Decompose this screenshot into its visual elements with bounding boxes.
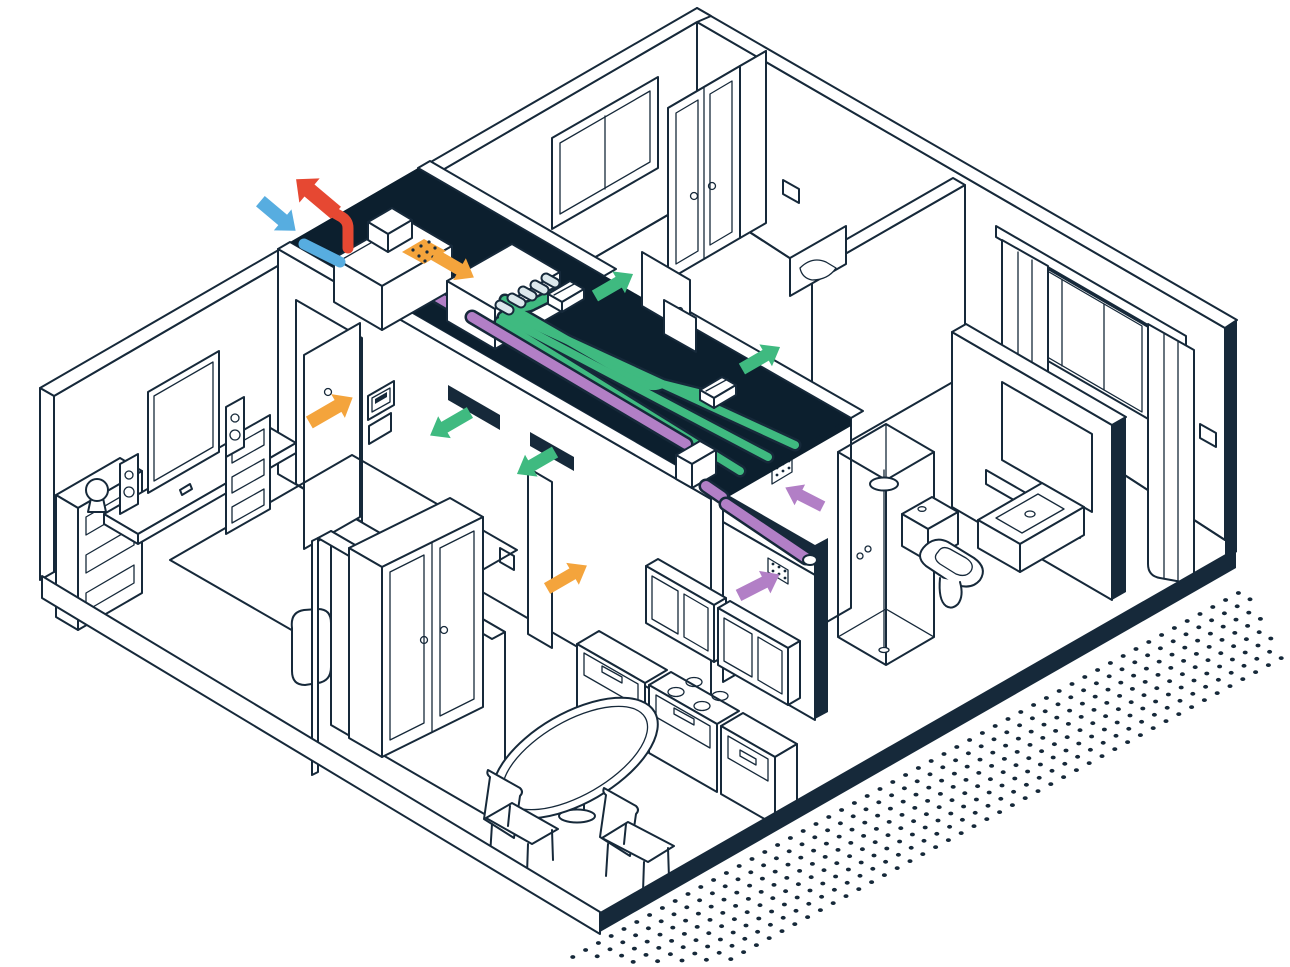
- halftone-dot: [890, 780, 895, 784]
- halftone-dot: [1075, 755, 1080, 759]
- halftone-dot: [980, 731, 985, 735]
- halftone-dot: [1130, 687, 1135, 691]
- halftone-dot: [1165, 706, 1170, 710]
- halftone-dot: [619, 954, 624, 958]
- halftone-dot: [1268, 637, 1273, 641]
- halftone-dot: [914, 793, 919, 797]
- halftone-dot: [719, 924, 724, 928]
- halftone-dot: [966, 751, 971, 755]
- nw-wall-end-cut: [40, 388, 54, 580]
- halftone-dot: [864, 807, 869, 811]
- halftone-dot: [954, 745, 959, 749]
- halftone-dot: [812, 835, 817, 839]
- halftone-dot: [608, 947, 613, 951]
- halftone-dot: [1203, 685, 1208, 689]
- halftone-dot: [1031, 703, 1036, 707]
- halftone-dot: [1067, 709, 1072, 713]
- halftone-dot: [923, 826, 928, 830]
- halftone-dot: [1254, 657, 1259, 661]
- kitchen-door-frame: [528, 468, 552, 648]
- halftone-dot: [820, 882, 825, 886]
- halftone-dot: [929, 759, 934, 763]
- halftone-dot: [633, 933, 638, 937]
- halftone-dot: [1166, 693, 1171, 697]
- halftone-dot: [1152, 713, 1157, 717]
- halftone-dot: [876, 800, 881, 804]
- halftone-dot: [1228, 684, 1233, 688]
- halftone-dot: [805, 915, 810, 919]
- halftone-dot: [1025, 770, 1030, 774]
- halftone-dot: [583, 948, 588, 952]
- halftone-dot: [984, 817, 989, 821]
- halftone-dot: [1153, 700, 1158, 704]
- halftone-dot: [908, 859, 913, 863]
- halftone-dot: [1104, 701, 1109, 705]
- halftone-dot: [706, 931, 711, 935]
- halftone-dot: [1267, 650, 1272, 654]
- halftone-dot: [1064, 749, 1069, 753]
- halftone-dot: [1222, 611, 1227, 615]
- halftone-dot: [928, 772, 933, 776]
- halftone-dot: [731, 931, 736, 935]
- halftone-dot: [704, 958, 709, 962]
- halftone-dot: [870, 867, 875, 871]
- halftone-dot: [1193, 665, 1198, 669]
- halftone-dot: [1006, 717, 1011, 721]
- halftone-dot: [903, 773, 908, 777]
- halftone-dot: [1057, 689, 1062, 693]
- halftone-dot: [1248, 597, 1253, 601]
- halftone-dot: [852, 801, 857, 805]
- halftone-dot: [974, 798, 979, 802]
- halftone-dot: [1068, 695, 1073, 699]
- halftone-dot: [939, 779, 944, 783]
- halftone-dot: [900, 813, 905, 817]
- halftone-dot: [632, 947, 637, 951]
- halftone-dot: [873, 840, 878, 844]
- halftone-dot: [1015, 750, 1020, 754]
- halftone-dot: [732, 917, 737, 921]
- halftone-dot: [670, 926, 675, 930]
- halftone-dot: [728, 957, 733, 961]
- halftone-dot: [951, 785, 956, 789]
- halftone-dot: [786, 863, 791, 867]
- halftone-dot: [595, 954, 600, 958]
- halftone-dot: [754, 943, 759, 947]
- halftone-dot: [655, 959, 660, 963]
- halftone-dot: [646, 926, 651, 930]
- halftone-dot: [705, 945, 710, 949]
- halftone-dot: [1257, 630, 1262, 634]
- halftone-dot: [953, 758, 958, 762]
- halftone-dot: [909, 846, 914, 850]
- halftone-dot: [831, 901, 836, 905]
- halftone-dot: [1093, 695, 1098, 699]
- extract-duct-end-cap: [803, 555, 817, 565]
- halftone-dot: [681, 945, 686, 949]
- halftone-dot: [975, 784, 980, 788]
- halftone-dot: [990, 751, 995, 755]
- halftone-dot: [1080, 702, 1085, 706]
- halftone-dot: [1138, 733, 1143, 737]
- halftone-dot: [708, 918, 713, 922]
- halftone-dot: [1089, 735, 1094, 739]
- wall-end-navy: [1112, 417, 1126, 600]
- halftone-dot: [1215, 691, 1220, 695]
- halftone-dot: [1258, 617, 1263, 621]
- halftone-dot: [839, 808, 844, 812]
- halftone-dot: [836, 848, 841, 852]
- halftone-dot: [997, 810, 1002, 814]
- halftone-dot: [1074, 768, 1079, 772]
- halftone-dot: [901, 800, 906, 804]
- halftone-dot: [1043, 709, 1048, 713]
- halftone-dot: [1245, 624, 1250, 628]
- halftone-dot: [865, 794, 870, 798]
- halftone-dot: [672, 912, 677, 916]
- halftone-dot: [1114, 734, 1119, 738]
- halftone-dot: [660, 906, 665, 910]
- halftone-dot: [1024, 783, 1029, 787]
- halftone-dot: [769, 910, 774, 914]
- halftone-dot: [967, 738, 972, 742]
- halftone-dot: [659, 919, 664, 923]
- halftone-dot: [770, 896, 775, 900]
- halftone-dot: [792, 922, 797, 926]
- halftone-dot: [1108, 661, 1113, 665]
- halftone-dot: [1129, 700, 1134, 704]
- halftone-dot: [942, 752, 947, 756]
- halftone-dot: [1244, 637, 1249, 641]
- halftone-dot: [1101, 741, 1106, 745]
- halftone-dot: [758, 903, 763, 907]
- halftone-dot: [1002, 757, 1007, 761]
- halftone-dot: [948, 812, 953, 816]
- halftone-dot: [1026, 756, 1031, 760]
- halftone-dot: [1038, 763, 1043, 767]
- halftone-dot: [1253, 670, 1258, 674]
- halftone-dot: [709, 905, 714, 909]
- halftone-dot: [911, 819, 916, 823]
- halftone-dot: [993, 724, 998, 728]
- halftone-dot: [915, 779, 920, 783]
- halftone-dot: [845, 881, 850, 885]
- halftone-dot: [1030, 716, 1035, 720]
- halftone-dot: [647, 913, 652, 917]
- halftone-dot: [744, 924, 749, 928]
- halftone-dot: [1131, 674, 1136, 678]
- halftone-dot: [884, 847, 889, 851]
- halftone-dot: [834, 861, 839, 865]
- halftone-dot: [1042, 723, 1047, 727]
- halftone-dot: [756, 917, 761, 921]
- halftone-dot: [1003, 744, 1008, 748]
- halftone-dot: [784, 876, 789, 880]
- halftone-dot: [822, 868, 827, 872]
- halftone-dot: [762, 850, 767, 854]
- halftone-dot: [781, 916, 786, 920]
- halftone-dot: [934, 832, 939, 836]
- halftone-dot: [1210, 605, 1215, 609]
- halftone-dot: [1095, 668, 1100, 672]
- halftone-dot: [989, 764, 994, 768]
- halftone-dot: [1156, 673, 1161, 677]
- halftone-dot: [1087, 761, 1092, 765]
- hall-door-leaf: [304, 323, 360, 549]
- halftone-dot: [1078, 728, 1083, 732]
- halftone-dot: [798, 856, 803, 860]
- halftone-dot: [837, 835, 842, 839]
- halftone-dot: [697, 898, 702, 902]
- halftone-dot: [832, 888, 837, 892]
- halftone-dot: [972, 824, 977, 828]
- halftone-dot: [772, 883, 777, 887]
- halftone-dot: [1100, 754, 1105, 758]
- halftone-dot: [1242, 664, 1247, 668]
- halftone-dot: [774, 856, 779, 860]
- halftone-dot: [1229, 671, 1234, 675]
- halftone-dot: [797, 869, 802, 873]
- halftone-dot: [1158, 646, 1163, 650]
- halftone-dot: [1217, 665, 1222, 669]
- halftone-dot: [1144, 667, 1149, 671]
- halftone-dot: [1029, 730, 1034, 734]
- halftone-dot: [1044, 696, 1049, 700]
- halftone-dot: [767, 936, 772, 940]
- halftone-dot: [1106, 688, 1111, 692]
- halftone-dot: [1092, 708, 1097, 712]
- halftone-dot: [1112, 747, 1117, 751]
- halftone-dot: [1178, 699, 1183, 703]
- halftone-dot: [750, 857, 755, 861]
- halftone-dot: [1189, 705, 1194, 709]
- halftone-dot: [1151, 726, 1156, 730]
- halftone-dot: [810, 862, 815, 866]
- halftone-dot: [1056, 702, 1061, 706]
- halftone-dot: [1103, 714, 1108, 718]
- halftone-dot: [1145, 653, 1150, 657]
- halftone-dot: [1014, 763, 1019, 767]
- halftone-dot: [1088, 748, 1093, 752]
- halftone-dot: [634, 920, 639, 924]
- halftone-dot: [1082, 675, 1087, 679]
- halftone-dot: [711, 878, 716, 882]
- halftone-dot: [959, 831, 964, 835]
- halftone-dot: [1240, 677, 1245, 681]
- halftone-dot: [1194, 652, 1199, 656]
- halftone-dot: [644, 953, 649, 957]
- halftone-dot: [874, 827, 879, 831]
- halftone-dot: [775, 843, 780, 847]
- halftone-dot: [1102, 728, 1107, 732]
- halftone-dot: [987, 791, 992, 795]
- halftone-dot: [718, 938, 723, 942]
- halftone-dot: [787, 849, 792, 853]
- halftone-dot: [979, 744, 984, 748]
- halftone-dot: [1128, 714, 1133, 718]
- halftone-dot: [1190, 692, 1195, 696]
- halftone-dot: [1062, 762, 1067, 766]
- halftone-dot: [1070, 682, 1075, 686]
- halftone-dot: [838, 821, 843, 825]
- halftone-dot: [878, 787, 883, 791]
- halftone-dot: [1094, 681, 1099, 685]
- halftone-dot: [922, 839, 927, 843]
- halftone-dot: [1039, 749, 1044, 753]
- halftone-dot: [1037, 776, 1042, 780]
- halftone-dot: [1164, 719, 1169, 723]
- halftone-dot: [976, 771, 981, 775]
- halftone-dot: [1090, 721, 1095, 725]
- halftone-dot: [1180, 672, 1185, 676]
- halftone-dot: [910, 833, 915, 837]
- halftone-dot: [755, 930, 760, 934]
- halftone-dot: [695, 925, 700, 929]
- halftone-dot: [1126, 727, 1131, 731]
- halftone-dot: [720, 911, 725, 915]
- halftone-dot: [933, 845, 938, 849]
- halftone-dot: [1231, 644, 1236, 648]
- halftone-dot: [883, 860, 888, 864]
- halftone-dot: [759, 890, 764, 894]
- halftone-dot: [1246, 611, 1251, 615]
- halftone-dot: [741, 950, 746, 954]
- halftone-dot: [998, 797, 1003, 801]
- halftone-dot: [937, 805, 942, 809]
- halftone-dot: [1066, 722, 1071, 726]
- halftone-dot: [1196, 625, 1201, 629]
- halftone-dot: [1207, 645, 1212, 649]
- halftone-dot: [747, 884, 752, 888]
- wall-end-navy: [815, 538, 828, 719]
- halftone-dot: [1179, 686, 1184, 690]
- halftone-dot: [796, 882, 801, 886]
- halftone-dot: [680, 959, 685, 963]
- halftone-dot: [794, 909, 799, 913]
- halftone-dot: [788, 836, 793, 840]
- halftone-dot: [1117, 694, 1122, 698]
- halftone-dot: [1010, 803, 1015, 807]
- halftone-dot: [620, 940, 625, 944]
- halftone-dot: [1168, 666, 1173, 670]
- halftone-dot: [673, 899, 678, 903]
- halftone-dot: [745, 910, 750, 914]
- halftone-dot: [692, 952, 697, 956]
- halftone-dot: [1266, 663, 1271, 667]
- halftone-dot: [936, 819, 941, 823]
- halftone-dot: [622, 927, 627, 931]
- halftone-dot: [1198, 612, 1203, 616]
- halftone-dot: [986, 804, 991, 808]
- halftone-dot: [748, 870, 753, 874]
- halftone-dot: [869, 880, 874, 884]
- halftone-dot: [733, 904, 738, 908]
- halftone-dot: [645, 940, 650, 944]
- halftone-dot: [1053, 729, 1058, 733]
- halftone-dot: [800, 842, 805, 846]
- halftone-dot: [1115, 721, 1120, 725]
- halftone-dot: [1052, 742, 1057, 746]
- halftone-dot: [1023, 796, 1028, 800]
- halftone-dot: [940, 765, 945, 769]
- halftone-dot: [710, 891, 715, 895]
- halftone-dot: [1243, 651, 1248, 655]
- halftone-dot: [887, 820, 892, 824]
- halftone-dot: [1232, 631, 1237, 635]
- halftone-dot: [596, 941, 601, 945]
- halftone-dot: [1218, 651, 1223, 655]
- halftone-dot: [825, 828, 830, 832]
- halftone-dot: [570, 955, 575, 959]
- halftone-dot: [1120, 667, 1125, 671]
- halftone-dot: [1065, 735, 1070, 739]
- halftone-dot: [1028, 743, 1033, 747]
- halftone-dot: [992, 737, 997, 741]
- halftone-dot: [1172, 626, 1177, 630]
- halftone-dot: [961, 805, 966, 809]
- halftone-dot: [694, 938, 699, 942]
- halftone-dot: [1157, 660, 1162, 664]
- halftone-dot: [1050, 769, 1055, 773]
- halftone-dot: [1206, 658, 1211, 662]
- halftone-dot: [1192, 679, 1197, 683]
- halftone-dot: [947, 825, 952, 829]
- halftone-dot: [960, 818, 965, 822]
- halftone-dot: [1140, 707, 1145, 711]
- halftone-dot: [823, 855, 828, 859]
- halftone-dot: [1054, 716, 1059, 720]
- halftone-dot: [1176, 712, 1181, 716]
- halftone-dot: [780, 929, 785, 933]
- halftone-dot: [1159, 633, 1164, 637]
- halftone-dot: [819, 895, 824, 899]
- halftone-dot: [1209, 618, 1214, 622]
- halftone-dot: [773, 870, 778, 874]
- halftone-dot: [851, 814, 856, 818]
- halftone-dot: [818, 908, 823, 912]
- halftone-dot: [950, 798, 955, 802]
- halftone-dot: [1279, 656, 1284, 660]
- halftone-dot: [658, 933, 663, 937]
- halftone-dot: [826, 815, 831, 819]
- halftone-dot: [1079, 715, 1084, 719]
- halftone-dot: [1167, 679, 1172, 683]
- apartment-cutaway-svg: [0, 0, 1290, 967]
- halftone-dot: [1061, 775, 1066, 779]
- halftone-dot: [760, 877, 765, 881]
- arrow-fresh-air-in: [252, 191, 305, 242]
- halftone-dot: [1202, 698, 1207, 702]
- halftone-dot: [683, 919, 688, 923]
- halftone-dot: [1220, 638, 1225, 642]
- halftone-dot: [952, 772, 957, 776]
- halftone-dot: [1195, 639, 1200, 643]
- halftone-dot: [1256, 644, 1261, 648]
- halftone-dot: [964, 778, 969, 782]
- wardrobe-side: [740, 51, 766, 238]
- halftone-dot: [1018, 710, 1023, 714]
- halftone-dot: [801, 829, 806, 833]
- halftone-dot: [1076, 742, 1081, 746]
- halftone-dot: [1154, 686, 1159, 690]
- halftone-dot: [1234, 618, 1239, 622]
- halftone-dot: [782, 903, 787, 907]
- halftone-dot: [860, 847, 865, 851]
- halftone-dot: [656, 946, 661, 950]
- halftone-dot: [686, 892, 691, 896]
- halftone-dot: [1184, 632, 1189, 636]
- halftone-dot: [1116, 707, 1121, 711]
